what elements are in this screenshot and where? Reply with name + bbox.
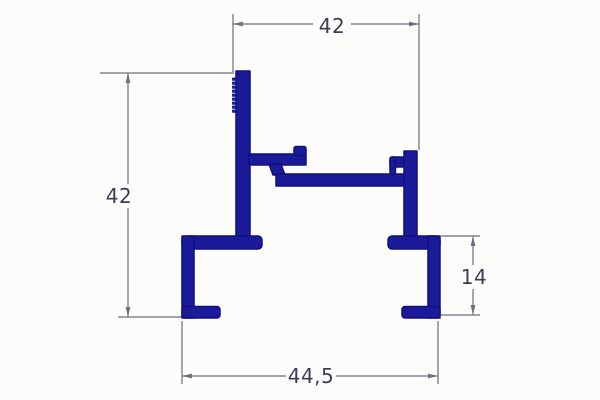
arrowhead-left-icon [233, 22, 243, 27]
profile-drawing: 42 42 14 44,5 [0, 0, 600, 400]
profile-top-wall [236, 71, 250, 243]
profile-right-foot-leg [428, 236, 440, 318]
dimension-label-top-width: 42 [319, 14, 345, 38]
profile-cross-section [182, 71, 440, 318]
arrowhead-right-icon [409, 22, 419, 27]
profile-right-wall-hook-tip [390, 157, 396, 174]
arrowhead-down-icon [126, 307, 131, 317]
dimension-label-masks [102, 13, 491, 386]
profile-right-foot-lip [402, 307, 440, 319]
dimension-label-bottom-width: 44,5 [288, 364, 335, 388]
arrowhead-right-icon [428, 374, 438, 379]
arrowhead-up-icon [471, 236, 476, 246]
arrowhead-down-icon [471, 305, 476, 315]
arrowhead-left-icon [182, 374, 192, 379]
technical-drawing-canvas: 42 42 14 44,5 [0, 0, 600, 400]
profile-middle-web [276, 174, 412, 186]
profile-arm-lip [294, 147, 306, 156]
profile-left-foot-lip [182, 307, 220, 319]
profile-right-wall [404, 151, 417, 237]
arrowhead-up-icon [126, 73, 131, 83]
dimension-label-left-height: 42 [106, 184, 132, 208]
profile-left-foot-leg [182, 236, 194, 318]
profile-serrations [233, 78, 237, 112]
dimension-label-right-foot-height: 14 [461, 265, 487, 289]
